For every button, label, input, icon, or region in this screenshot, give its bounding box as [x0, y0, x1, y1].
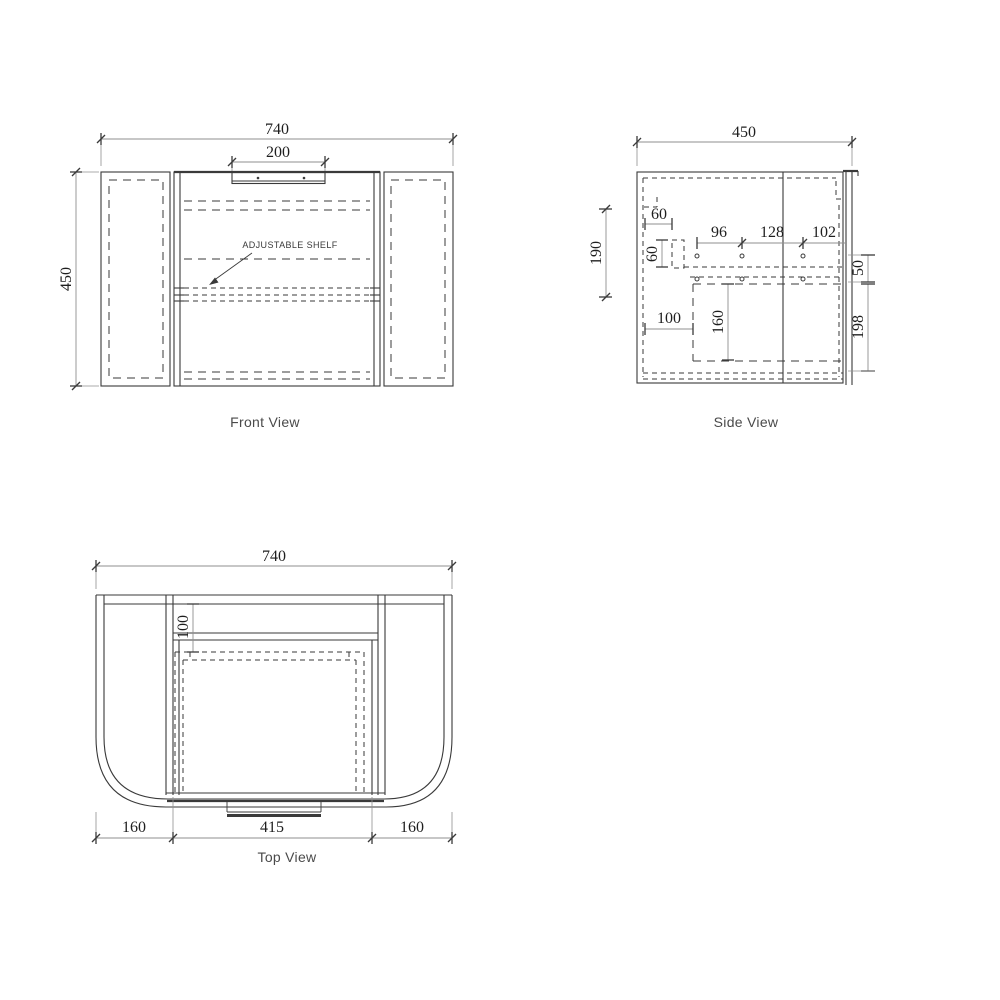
technical-drawing-sheet: 740 200 450 [0, 0, 1000, 1000]
side-dim-basin-height: 160 [710, 284, 734, 360]
side-hole-span-128-text: 128 [760, 224, 784, 241]
top-overall-width-dim-text: 740 [262, 548, 286, 565]
front-recess-width-dim-text: 200 [266, 144, 290, 161]
front-view-caption: Front View [230, 414, 300, 430]
adjustable-shelf-label: ADJUSTABLE SHELF [242, 240, 337, 250]
top-cabinet-hidden-outline [175, 652, 364, 792]
front-cabinet-carcass [174, 172, 380, 386]
side-rail-offset-dim-text: 60 [651, 206, 667, 223]
side-rail-height-dim-text: 60 [644, 246, 661, 262]
top-view: 740 [92, 548, 456, 865]
side-hole-span-102-text: 102 [812, 224, 836, 241]
top-left-wing-dim-text: 160 [122, 819, 146, 836]
side-bottom-height-dim-text: 198 [850, 315, 867, 339]
top-back-depth-dim-text: 100 [175, 615, 192, 639]
side-left-height-dim-text: 190 [588, 241, 605, 265]
side-dim-rail-offset: 60 [645, 206, 672, 230]
top-right-wing-dim-text: 160 [400, 819, 424, 836]
front-right-door-panel [384, 172, 453, 386]
drawing-canvas: 740 200 450 [0, 0, 1000, 1000]
side-basin-offset-dim-text: 100 [657, 310, 681, 327]
front-top-recess [232, 173, 325, 184]
side-overall-depth-dim-text: 450 [732, 124, 756, 141]
top-dim-overall-width: 740 [92, 548, 456, 589]
side-dim-rail-height: 60 [644, 240, 668, 267]
side-hole-span-96-text: 96 [711, 224, 727, 241]
top-view-caption: Top View [258, 849, 318, 865]
side-view: 450 [588, 124, 875, 430]
front-overall-width-dim-text: 740 [265, 121, 289, 138]
front-overall-height-dim-text: 450 [58, 267, 75, 291]
front-dim-overall-height: 450 [58, 168, 99, 390]
front-shelf-callout: ADJUSTABLE SHELF [209, 240, 338, 285]
side-basin-height-dim-text: 160 [710, 310, 727, 334]
top-opening-dim-text: 415 [260, 819, 284, 836]
side-dim-left-height: 190 [588, 205, 612, 301]
top-benchtop-outline [96, 595, 452, 807]
top-handle [227, 802, 321, 816]
side-view-caption: Side View [714, 414, 779, 430]
front-shelf-lines [174, 201, 380, 379]
top-dim-bottom-row: 160 415 160 [92, 797, 456, 844]
side-cabinet-outline [637, 171, 858, 385]
side-mounting-holes: 96 128 102 [695, 224, 846, 281]
front-dim-recess-width: 200 [228, 144, 329, 171]
side-dim-overall-depth: 450 [633, 124, 856, 166]
side-dim-basin-offset: 100 [645, 310, 693, 335]
front-view: 740 200 450 [58, 121, 457, 430]
front-left-door-panel [101, 172, 170, 386]
side-top-gap-dim-text: 50 [850, 260, 867, 276]
side-hidden-lines [643, 178, 843, 379]
